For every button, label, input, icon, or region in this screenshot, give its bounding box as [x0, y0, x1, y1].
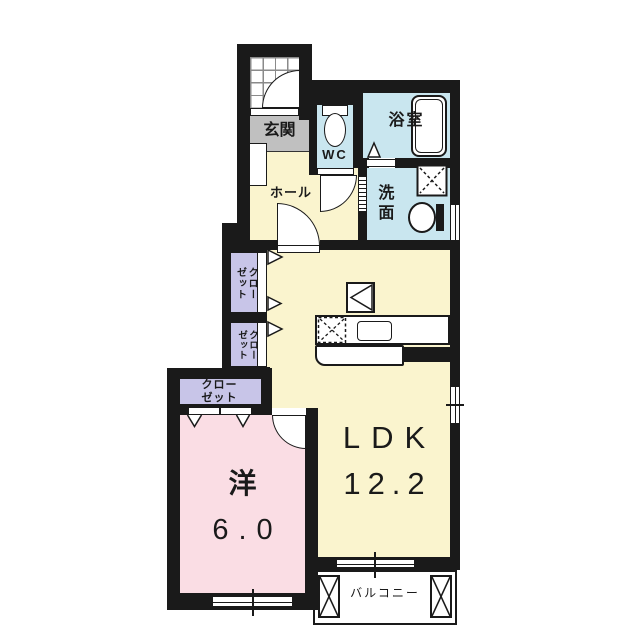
- entrance-label: 玄関: [250, 122, 309, 140]
- stove-icon: [317, 316, 347, 344]
- wall-porch-left: [237, 44, 250, 115]
- bedroom-size: 6.0: [180, 514, 305, 547]
- closet-lower-label: クロー ゼット: [231, 324, 257, 366]
- wall-closet-column-left: [222, 240, 230, 377]
- bedroom-doorway: [272, 408, 306, 415]
- wall-toilet-right: [353, 93, 363, 168]
- closet-upper-door-marker-top-icon: [266, 248, 284, 266]
- wash-basin-counter: [436, 204, 444, 231]
- ldk-bottom-window: [337, 559, 414, 568]
- closet-bedroom-line2: ゼット: [177, 392, 262, 405]
- hall-label: ホール: [256, 186, 326, 201]
- closet-lower-line1: クロー: [246, 324, 257, 366]
- ldk-right-window-tick: [446, 404, 464, 406]
- refrigerator-icon: [346, 282, 375, 313]
- ldk-label: LDK: [318, 420, 450, 456]
- closet-bedroom-label: クロー ゼット: [177, 379, 262, 405]
- wall-sanitary-left: [309, 80, 317, 175]
- ldk-size: 12.2: [318, 466, 450, 502]
- floor-plan: 玄関 WC 浴室 洗面 ホール クロー ゼット クロー ゼット クロー ゼット …: [0, 0, 640, 640]
- wash-basin: [408, 202, 436, 233]
- wall-sanitary-top: [309, 80, 460, 93]
- bathroom-door-sill: [366, 159, 396, 167]
- kitchen-counter-front: [315, 345, 404, 366]
- wall-right-3: [450, 423, 460, 570]
- kitchen-sink: [357, 321, 392, 341]
- toilet-label: WC: [317, 148, 353, 163]
- washing-machine-icon: [416, 164, 448, 197]
- closet-upper-door-marker-bottom-icon: [266, 295, 283, 312]
- bedroom-label: 洋: [180, 468, 305, 500]
- wall-bedroom-right: [305, 408, 318, 610]
- closet-upper-label: クロー ゼット: [231, 255, 257, 311]
- bedroom-closet-marker-right-icon: [235, 414, 251, 428]
- wall-right-2: [450, 240, 460, 387]
- balcony-label: バルコニー: [339, 587, 431, 601]
- washroom-sliding-door: [358, 175, 367, 212]
- washroom-label: 洗面: [374, 177, 392, 231]
- closet-lower-door-marker-icon: [266, 320, 284, 338]
- wall-right-1: [450, 80, 460, 205]
- toilet-bowl: [324, 113, 346, 147]
- bathroom-door-icon: [366, 141, 382, 158]
- wall-left-jog: [222, 223, 250, 240]
- toilet-door-sill: [317, 168, 354, 175]
- wall-toilet-top: [317, 93, 353, 105]
- shoe-cabinet: [249, 143, 267, 186]
- bathroom-label: 浴室: [363, 112, 450, 130]
- wall-closet-mid: [230, 313, 267, 322]
- wall-closet-top: [230, 240, 267, 252]
- entrance-door-sill: [250, 108, 299, 116]
- wall-closetblock-top: [167, 368, 270, 378]
- closet-upper-line1: クロー: [246, 255, 258, 311]
- ldk-bottom-window-line: [337, 564, 414, 565]
- closet-bedroom-line1: クロー: [177, 379, 262, 392]
- wall-ldk-top-right: [320, 240, 450, 250]
- bedroom-window-tick: [252, 589, 254, 616]
- balcony-hatch-left-icon: [318, 575, 340, 618]
- ldk-bottom-window-tick: [374, 552, 376, 578]
- balcony-hatch-right-icon: [430, 575, 452, 618]
- washroom-window-line: [455, 205, 456, 240]
- washroom-window: [450, 205, 460, 240]
- kitchen-half-wall: [404, 347, 453, 362]
- closet-lower-line2: ゼット: [235, 324, 246, 366]
- closet-upper-line2: ゼット: [234, 255, 246, 311]
- bedroom-closet-marker-left-icon: [186, 414, 203, 428]
